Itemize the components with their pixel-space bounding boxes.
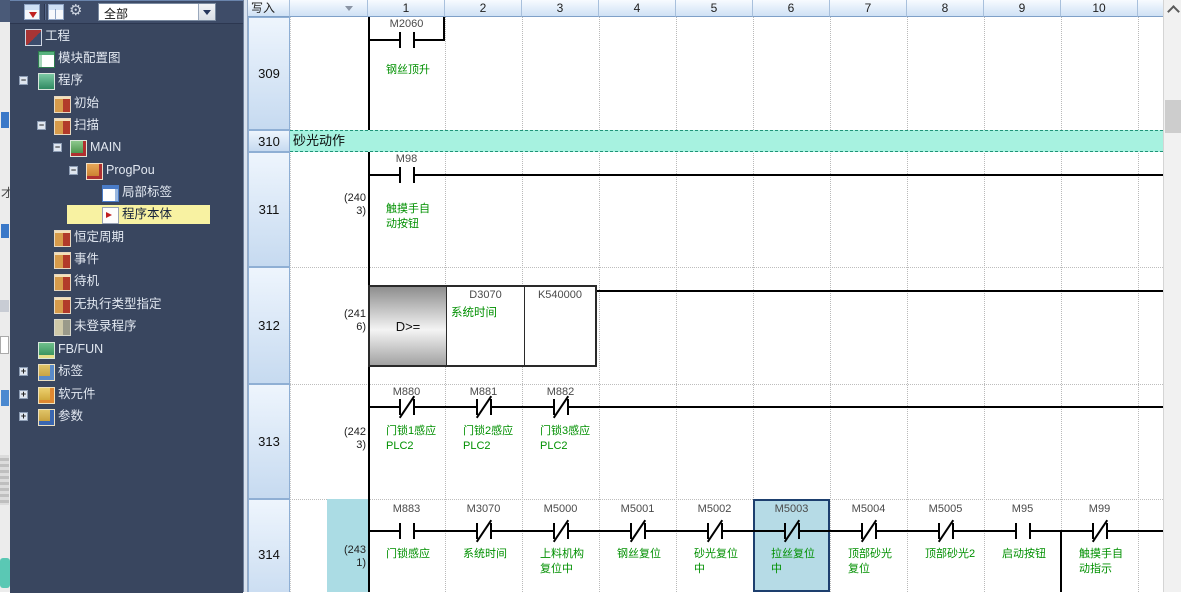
tree-item-project[interactable]: 工程 <box>10 26 243 47</box>
ladder-contact-m881[interactable]: M881 门锁2感应 PLC2 <box>445 384 522 499</box>
sort-window-icon[interactable] <box>24 4 40 20</box>
contact-bar <box>721 523 723 539</box>
parameter-folder-icon <box>38 409 55 426</box>
ladder-contact-m3070[interactable]: M3070 系统时间 <box>445 499 522 592</box>
tree-item-parameter[interactable]: + 参数 <box>10 406 243 427</box>
contact-bar <box>1106 523 1108 539</box>
tree-item-progpou[interactable]: − ProgPou <box>10 160 243 181</box>
ladder-contact-m5003-selected[interactable]: M5003 拉丝复位 中 <box>753 499 830 592</box>
ladder-contact-m5002[interactable]: M5002 砂光复位 中 <box>676 499 753 592</box>
vertical-scrollbar[interactable] <box>1163 0 1181 592</box>
left-edge-fragment <box>0 558 10 588</box>
program-item-icon <box>54 274 71 291</box>
grid-line <box>290 17 292 592</box>
contact-bar <box>567 399 569 415</box>
contact-gap <box>401 174 413 176</box>
project-icon <box>25 29 42 46</box>
contact-gap <box>401 39 413 41</box>
ladder-contact-m99[interactable]: M99 触摸手自 动指示 <box>1061 499 1138 592</box>
program-item-icon <box>54 118 71 135</box>
operand-cell[interactable]: D3070 系统时间 <box>447 287 524 365</box>
tree-item-unregistered[interactable]: 未登录程序 <box>10 316 243 337</box>
column-header-1: 1 <box>368 0 445 17</box>
tree-item-device[interactable]: + 软元件 <box>10 384 243 405</box>
tree-item-main[interactable]: − MAIN <box>10 137 243 158</box>
column-header-9: 9 <box>984 0 1061 17</box>
contact-bar <box>1029 523 1031 539</box>
expand-expander[interactable]: + <box>19 412 28 421</box>
unregistered-program-icon <box>54 319 71 336</box>
dropdown-arrow-button[interactable] <box>198 4 215 20</box>
module-config-icon <box>38 51 55 68</box>
contact-bar <box>567 523 569 539</box>
project-tree-panel: ⚙ 全部 工程 模块配置图 − 程序 初始 − 扫描 − MAIN − <box>10 0 243 593</box>
fb-fun-icon <box>38 342 55 359</box>
contact-bar <box>399 32 401 48</box>
contact-bar <box>490 399 492 415</box>
red-arrow-glyph <box>29 12 37 18</box>
ladder-contact-m2060[interactable]: M2060 钢丝顶升 <box>368 17 445 130</box>
header-filler <box>1138 0 1163 17</box>
ladder-contact-m882[interactable]: M882 门锁3感应 PLC2 <box>522 384 599 499</box>
contact-bar <box>798 523 800 539</box>
contact-bar <box>399 523 401 539</box>
contact-bar <box>413 523 415 539</box>
compare-op-cell: D>= <box>370 287 447 365</box>
device-folder-icon <box>38 387 55 404</box>
rung-number[interactable]: 310 <box>248 130 290 152</box>
column-header-8: 8 <box>907 0 984 17</box>
tree-item-label[interactable]: + 标签 <box>10 361 243 382</box>
ladder-contact-m5005[interactable]: M5005 顶部砂光2 <box>907 499 984 592</box>
column-header-3: 3 <box>522 0 599 17</box>
ladder-contact-m95[interactable]: M95 启动按钮 <box>984 499 1061 592</box>
left-edge-fragment <box>1 390 9 406</box>
grid-line <box>290 267 1163 269</box>
rung-number[interactable]: 309 <box>248 17 290 130</box>
toolbar-separator <box>44 4 46 20</box>
tree-filter-dropdown[interactable]: 全部 <box>98 3 216 21</box>
split-glyph <box>55 9 56 19</box>
expand-expander[interactable]: + <box>19 367 28 376</box>
collapse-expander[interactable]: − <box>19 76 28 85</box>
tree-item-module-config[interactable]: 模块配置图 <box>10 48 243 69</box>
contact-gap <box>401 530 413 532</box>
tree-item-no-exec-type[interactable]: 无执行类型指定 <box>10 294 243 315</box>
left-edge-fragment <box>0 455 9 505</box>
step-number: (2416) <box>300 308 366 334</box>
rung-number[interactable]: 311 <box>248 152 290 267</box>
column-header-5: 5 <box>676 0 753 17</box>
contact-bar <box>644 523 646 539</box>
contact-bar <box>952 523 954 539</box>
left-edge-fragment <box>1 112 9 128</box>
column-header-6: 6 <box>753 0 830 17</box>
compare-block[interactable]: D>= D3070 系统时间 K540000 <box>368 285 597 367</box>
column-header-4: 4 <box>599 0 676 17</box>
label-folder-icon <box>38 364 55 381</box>
local-label-icon <box>102 185 119 202</box>
scrollbar-thumb[interactable] <box>1165 100 1181 133</box>
rung-line <box>597 290 1163 292</box>
contact-bar <box>399 167 401 183</box>
contact-bar <box>413 399 415 415</box>
ladder-contact-m880[interactable]: M880 门锁1感应 PLC2 <box>368 384 445 499</box>
rung-number[interactable]: 314 <box>248 499 290 592</box>
ladder-editor: 砂光动作 M2060 钢丝顶升 (2403) M98 触摸手自 动按钮 (241… <box>248 0 1163 592</box>
tree-filter-value: 全部 <box>104 5 128 22</box>
operand-cell[interactable]: K540000 <box>524 287 595 365</box>
gear-icon[interactable]: ⚙ <box>69 2 85 18</box>
step-number: (2423) <box>300 426 366 452</box>
column-header-10: 10 <box>1061 0 1138 17</box>
ladder-contact-m5004[interactable]: M5004 顶部砂光 复位 <box>830 499 907 592</box>
tree-item-fb-fun[interactable]: FB/FUN <box>10 339 243 360</box>
expand-expander[interactable]: + <box>19 390 28 399</box>
tree-item-event[interactable]: 事件 <box>10 249 243 270</box>
collapse-expander[interactable]: − <box>69 166 78 175</box>
ladder-contact-m5000[interactable]: M5000 上料机构 复位中 <box>522 499 599 592</box>
step-number: (2431) <box>300 544 366 570</box>
tree-item-initial[interactable]: 初始 <box>10 93 243 114</box>
contact-bar <box>1015 523 1017 539</box>
chevron-up-icon <box>1167 5 1180 18</box>
chevron-down-icon[interactable] <box>345 6 353 11</box>
ladder-contact-m5001[interactable]: M5001 钢丝复位 <box>599 499 676 592</box>
program-item-icon <box>54 96 71 113</box>
chevron-down-icon <box>203 10 211 15</box>
tree-item-program-body[interactable]: 程序本体 <box>10 204 243 225</box>
tree-item-standby[interactable]: 待机 <box>10 271 243 292</box>
ladder-contact-m883[interactable]: M883 门锁感应 <box>368 499 445 592</box>
program-item-icon <box>54 297 71 314</box>
left-edge-fragment <box>1 224 9 238</box>
pou-icon <box>86 163 103 180</box>
compare-op-label: D>= <box>396 319 421 334</box>
main-program-icon <box>70 140 87 157</box>
column-header-7: 7 <box>830 0 907 17</box>
step-number: (2403) <box>300 192 366 218</box>
rung-line <box>368 174 1163 176</box>
rung-comment-bar[interactable]: 砂光动作 <box>290 130 1163 152</box>
program-item-icon <box>54 230 71 247</box>
mode-label: 写入 <box>248 0 290 17</box>
program-folder-icon <box>38 73 55 90</box>
program-item-icon <box>54 252 71 269</box>
contact-bar <box>413 32 415 48</box>
collapse-expander[interactable]: − <box>53 143 62 152</box>
left-edge-fragment <box>0 336 9 354</box>
tree-item-local-label[interactable]: 局部标签 <box>10 182 243 203</box>
contact-bar <box>413 167 415 183</box>
column-header-2: 2 <box>445 0 522 17</box>
scroll-up-button[interactable] <box>1164 0 1181 17</box>
contact-bar <box>875 523 877 539</box>
tree-item-fixed-cycle[interactable]: 恒定周期 <box>10 227 243 248</box>
tree-toolbar: ⚙ 全部 <box>10 1 243 24</box>
left-edge-fragment: 才 <box>1 184 10 199</box>
left-edge-fragment <box>0 0 10 22</box>
tree-item-program[interactable]: − 程序 <box>10 70 243 91</box>
rung-number[interactable]: 312 <box>248 267 290 384</box>
contact-bar <box>490 523 492 539</box>
program-body-icon <box>102 207 119 224</box>
collapse-expander[interactable]: − <box>37 121 46 130</box>
left-edge-fragment <box>0 300 9 312</box>
layout-window-icon[interactable] <box>48 4 64 20</box>
ladder-contact-m98[interactable]: M98 触摸手自 动按钮 <box>368 152 445 267</box>
header-margin-cell <box>290 0 368 17</box>
rung-number[interactable]: 313 <box>248 384 290 499</box>
tree-item-scan[interactable]: − 扫描 <box>10 115 243 136</box>
contact-gap <box>1017 530 1029 532</box>
